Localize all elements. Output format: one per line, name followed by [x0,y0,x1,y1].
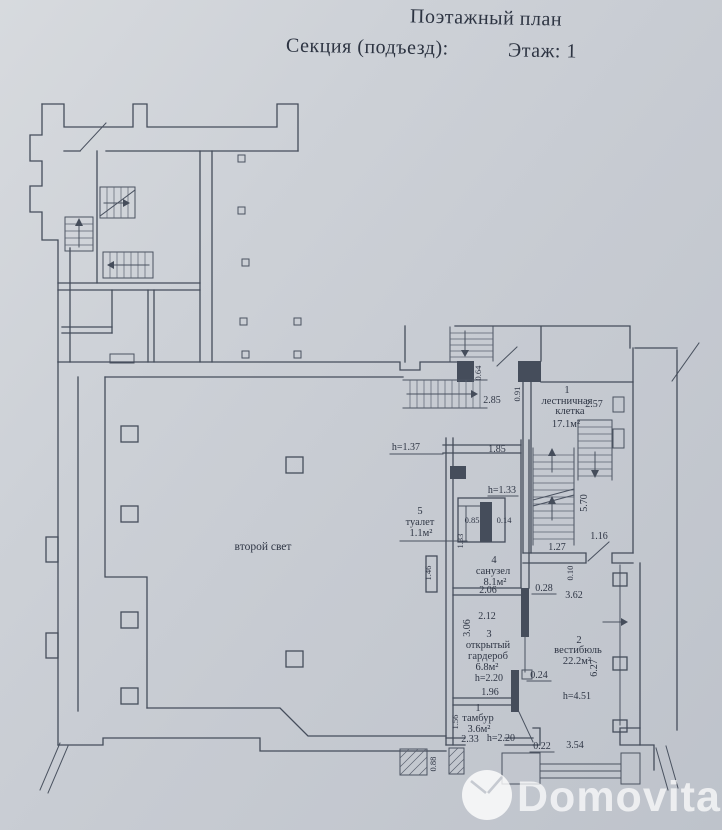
label-tambour-name: тамбур [462,713,493,724]
dim-1-33: 1.33 [455,534,465,549]
dim-0-22: 0.22 [533,741,551,752]
dim-h-4-51: h=4.51 [563,691,591,702]
label-toilet-name: туалет [406,517,435,528]
dim-2-33: 2.33 [461,734,479,745]
dim-0-88: 0.88 [428,757,438,772]
watermark: Domovita [462,770,721,821]
scanned-floor-plan-page: Поэтажный план Секция (подъезд): Этаж: 1 [0,0,722,830]
floor-plan-drawing: второй свет 1 лестничная клетка 17.1м² 5… [0,0,722,830]
second-light-room [40,362,446,793]
dim-2-12: 2.12 [478,611,496,622]
dim-1-16: 1.16 [590,531,608,542]
label-toilet-area: 1.1м² [410,528,433,539]
upper-left-section [30,104,301,363]
label-bathroom-name: санузел [476,566,510,577]
radiator [613,397,624,412]
hall-columns [238,155,301,358]
dim-0-10: 0.10 [565,566,575,581]
wall-break-line [672,343,699,381]
wall-pier [450,466,466,479]
wall-break-line [40,743,68,793]
label-second-light: второй свет [235,541,292,553]
dim-h-2-20-a: h=2.20 [475,673,503,684]
stairs-upper-a [100,187,135,218]
door-swing-stairwell-top [497,347,517,366]
wall-pier [521,588,529,637]
label-toilet-num: 5 [417,506,422,517]
dim-2-06: 2.06 [479,585,497,596]
dim-0-28: 0.28 [535,583,553,594]
label-wardrobe-name1: открытый [466,640,511,651]
dim-1-85: 1.85 [488,444,506,455]
door-swing-stairwell-bottom [588,542,609,561]
dim-5-70: 5.70 [579,494,590,512]
dim-0-91: 0.91 [512,387,522,402]
dim-0-64: 0.64 [473,365,483,381]
dim-3-62: 3.62 [565,590,583,601]
dim-6-27: 6.27 [589,659,600,677]
dim-1-27: 1.27 [548,542,566,553]
label-bathroom-num: 4 [491,555,497,566]
room-labels: второй свет 1 лестничная клетка 17.1м² 5… [235,385,602,735]
label-stairwell-area: 17.1м² [552,419,580,430]
watermark-text: Domovita [517,773,721,821]
wall-pilaster [46,537,58,562]
dim-2-57: 2.57 [585,399,603,410]
label-vestibule-area: 22.2м² [563,656,591,667]
stairs-upper-b [65,217,93,251]
wall-pier [457,361,474,382]
label-wardrobe-num: 3 [486,629,491,640]
stairs-middle-upper [450,327,493,361]
wall-pier [511,670,519,712]
dim-1-56: 1.56 [450,715,460,730]
stairs-upper-c [103,252,153,278]
radiator [613,429,624,448]
dim-h-2-20-b: h=2.20 [487,733,515,744]
dim-3-54: 3.54 [566,740,584,751]
label-wardrobe-name2: гардероб [468,651,508,662]
dim-h-1-37: h=1.37 [392,442,420,453]
dim-0-85: 0.85 [465,515,480,525]
label-wardrobe-area: 6.8м² [476,662,499,673]
label-vestibule-name: вестибюль [554,645,602,656]
dim-1-46: 1.46 [423,566,433,581]
stairwell-right-flight [578,420,612,480]
room-columns [121,426,303,704]
label-stairwell-name2: клетка [555,406,585,417]
wall-pier [518,361,541,382]
label-stairwell-num: 1 [564,385,569,396]
dim-h-1-33: h=1.33 [488,485,516,496]
wall-pilaster [46,633,58,658]
dim-0-14: 0.14 [497,515,513,525]
dim-0-24: 0.24 [530,670,548,681]
vestibule-section [533,565,678,790]
dim-2-85: 2.85 [483,395,501,406]
stairwell-left-flight [533,448,574,545]
watermark-logo-icon [462,770,512,820]
dim-3-06: 3.06 [462,619,473,637]
dim-1-96: 1.96 [481,687,499,698]
stairs-middle-lower [403,380,487,408]
